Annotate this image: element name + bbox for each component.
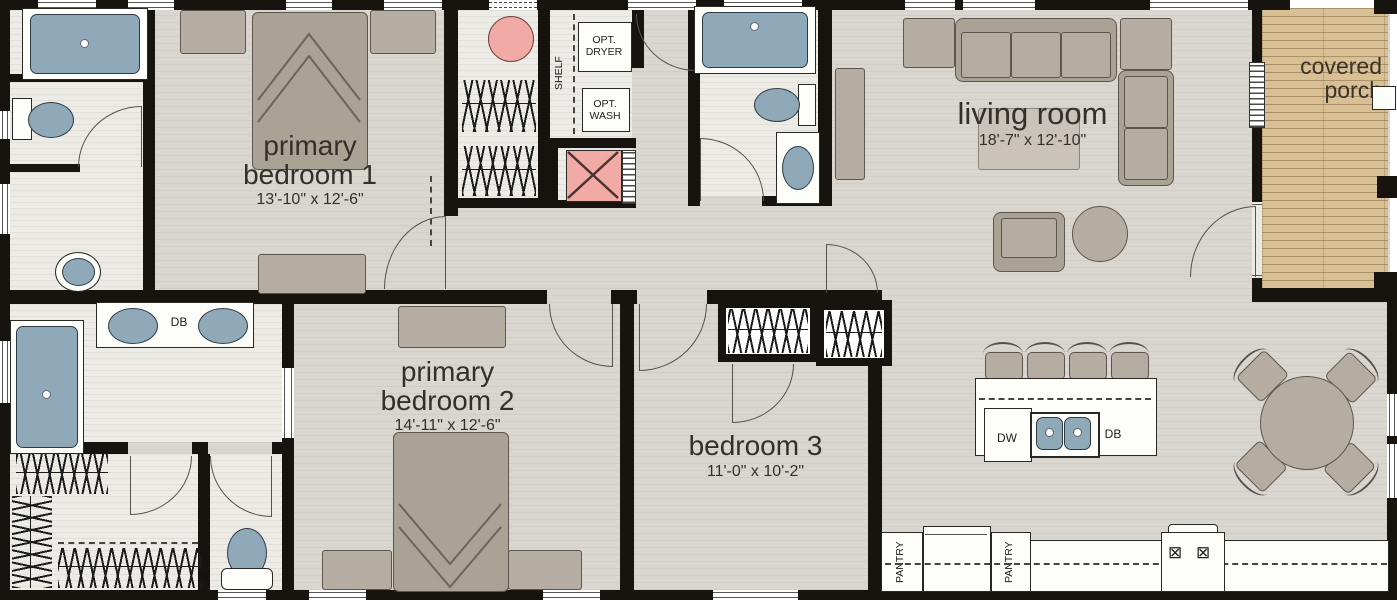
sofa-cushion <box>1061 32 1111 78</box>
floor-plan: primary bedroom 1 13'-10" x 12'-6" SHELF… <box>0 0 1397 600</box>
burner-icon: ⊠ <box>1196 544 1210 561</box>
wall <box>818 8 832 204</box>
closet-rod <box>728 309 808 353</box>
pantry-label: PANTRY <box>1003 538 1015 586</box>
room-label-primary-bedroom-1: primary bedroom 1 13'-10" x 12'-6" <box>215 132 405 208</box>
sink-drain <box>1073 428 1082 437</box>
porch-bottom-wall <box>1252 288 1397 302</box>
water-heater-icon <box>488 16 534 62</box>
end-table <box>1120 18 1172 70</box>
db-bath-label: DB <box>164 316 194 330</box>
closet-rod <box>16 454 108 494</box>
bar-stool <box>1027 352 1065 380</box>
room-name: primary bedroom 2 <box>345 358 550 415</box>
porch-post <box>1374 0 1397 14</box>
closet-rod <box>826 311 882 357</box>
furnace-wall <box>548 148 558 208</box>
porch-post <box>1374 272 1397 290</box>
room-dims: 11'-0" x 10'-2" <box>648 464 863 480</box>
window <box>963 0 1035 10</box>
mid-wall <box>611 290 637 304</box>
porch-post <box>1377 176 1397 198</box>
armchair-seat <box>1001 218 1057 258</box>
room-label-living-room: living room 18'-7" x 12'-10" <box>900 98 1165 149</box>
window <box>628 0 696 10</box>
wall <box>444 8 458 216</box>
room-dims: 18'-7" x 12'-10" <box>900 133 1165 149</box>
window <box>384 0 442 10</box>
window <box>309 590 366 600</box>
bar-stool <box>1069 352 1107 380</box>
porch-step <box>1372 86 1396 110</box>
nightstand <box>370 10 436 54</box>
toilet-icon <box>28 102 74 138</box>
window <box>1387 444 1397 498</box>
dining-table <box>1260 376 1354 470</box>
island-counter-line <box>979 398 1151 400</box>
burner-icon: ⊠ <box>1168 544 1182 561</box>
window <box>713 590 798 600</box>
nightstand <box>180 10 246 54</box>
optional-window <box>489 0 537 10</box>
window <box>543 590 600 600</box>
room-dims: 13'-10" x 12'-6" <box>215 192 405 208</box>
wall <box>620 304 634 600</box>
opt-dryer-label: OPT. DRYER <box>580 34 628 58</box>
window <box>905 0 955 10</box>
window <box>218 590 266 600</box>
dw-label: DW <box>988 432 1026 446</box>
tub-drain <box>80 39 89 48</box>
tub-drain <box>750 22 759 31</box>
toilet-tank <box>798 84 816 126</box>
bar-stool <box>985 352 1023 380</box>
wall <box>10 164 80 172</box>
window <box>0 341 10 403</box>
pantry-label: PANTRY <box>894 538 906 586</box>
closet-rod <box>58 548 202 588</box>
refrigerator <box>923 526 991 592</box>
toilet-tank <box>221 568 273 590</box>
furnace-x-icon <box>566 150 620 200</box>
dresser <box>258 254 366 294</box>
window <box>286 0 332 10</box>
sofa-cushion <box>1011 32 1061 78</box>
wall <box>272 442 286 454</box>
porch-window <box>1249 62 1265 128</box>
window <box>1387 394 1397 436</box>
bar-stool <box>1111 352 1149 380</box>
round-table <box>1072 206 1128 262</box>
room-label-primary-bedroom-2: primary bedroom 2 14'-11" x 12'-6" <box>345 358 550 434</box>
bedroom2-bath-opening <box>282 368 294 438</box>
wall <box>192 442 208 454</box>
furnace-wall <box>548 138 636 148</box>
room-label-bedroom-3: bedroom 3 11'-0" x 10'-2" <box>648 432 863 480</box>
refrigerator-door-line <box>925 534 987 535</box>
sink-icon <box>782 146 814 190</box>
wall <box>444 198 552 208</box>
counter-dash-line <box>885 563 1387 565</box>
stove <box>1161 532 1225 592</box>
bathtub-icon <box>702 12 808 68</box>
room-name: living room <box>900 98 1165 130</box>
sink-icon <box>62 258 95 286</box>
window <box>0 184 10 234</box>
media-cabinet <box>835 68 865 180</box>
tub-drain <box>42 390 51 399</box>
window <box>0 111 10 139</box>
dashed-opening-line <box>430 176 432 246</box>
louver-door <box>622 150 636 204</box>
closet-rod <box>12 496 52 588</box>
nightstand <box>322 550 392 590</box>
room-dims: 14'-11" x 12'-6" <box>345 418 550 434</box>
room-name: bedroom 3 <box>648 432 863 461</box>
porch-deck <box>1262 8 1388 290</box>
room-label-covered-porch: covered porch <box>1272 54 1382 102</box>
dresser <box>398 306 506 348</box>
sink-icon <box>198 308 248 344</box>
end-table <box>903 18 955 68</box>
db-kitchen-label: DB <box>1098 428 1128 442</box>
closet-rod <box>462 80 536 132</box>
bathtub-icon <box>16 326 78 448</box>
opt-wash-label: OPT. WASH <box>584 98 626 122</box>
wall <box>688 196 700 206</box>
sofa-cushion <box>961 32 1011 78</box>
nightstand <box>508 550 582 590</box>
bed-linen-fold <box>393 432 507 590</box>
room-name: primary bedroom 1 <box>215 132 405 189</box>
shelf-dash-line <box>58 542 198 544</box>
sink-icon <box>108 308 158 344</box>
shelf-label: SHELF <box>553 48 565 98</box>
sink-drain <box>1045 428 1054 437</box>
window <box>1150 0 1248 10</box>
closet-rod <box>462 146 536 196</box>
shelf-dash-line <box>573 14 575 134</box>
toilet-icon <box>754 88 800 122</box>
